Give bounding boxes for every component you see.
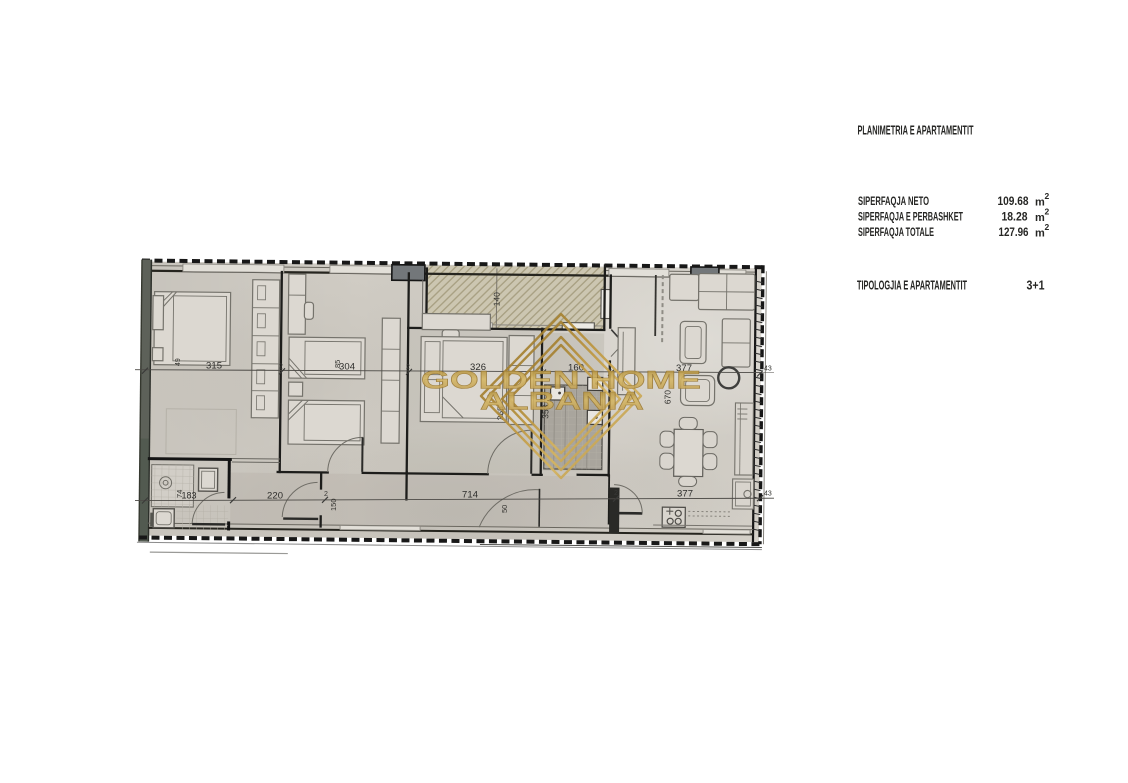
svg-text:43: 43 xyxy=(764,491,772,498)
svg-text:43: 43 xyxy=(764,366,772,373)
svg-text:2: 2 xyxy=(614,490,618,497)
svg-text:74: 74 xyxy=(175,490,184,498)
svg-text:49: 49 xyxy=(175,358,182,366)
svg-text:3+1: 3+1 xyxy=(1027,279,1045,293)
svg-text:SIPERFAQJA NETO: SIPERFAQJA NETO xyxy=(858,194,929,208)
svg-text:109.68: 109.68 xyxy=(998,194,1029,208)
svg-text:TIPOLOGJIA E APARTAMENTIT: TIPOLOGJIA E APARTAMENTIT xyxy=(857,279,967,293)
svg-text:2: 2 xyxy=(279,363,283,370)
svg-text:140: 140 xyxy=(492,292,502,307)
svg-text:m: m xyxy=(1035,212,1045,224)
svg-text:2: 2 xyxy=(324,491,328,498)
svg-text:220: 220 xyxy=(267,490,283,501)
svg-text:2: 2 xyxy=(406,364,410,371)
svg-text:SIPERFAQJA TOTALE: SIPERFAQJA TOTALE xyxy=(858,225,934,239)
svg-text:2: 2 xyxy=(1045,207,1050,217)
svg-text:85: 85 xyxy=(333,360,342,368)
svg-text:2: 2 xyxy=(1045,191,1050,201)
svg-text:m: m xyxy=(1035,228,1045,240)
svg-text:150: 150 xyxy=(329,498,338,511)
svg-text:50: 50 xyxy=(500,505,509,513)
svg-text:2: 2 xyxy=(1045,222,1050,232)
svg-text:714: 714 xyxy=(462,490,478,501)
svg-text:315: 315 xyxy=(206,361,222,372)
svg-text:ALBANIA: ALBANIA xyxy=(480,388,644,416)
svg-text:m: m xyxy=(1035,197,1045,209)
svg-text:377: 377 xyxy=(677,489,693,500)
svg-text:PLANIMETRIA E APARTAMENTIT: PLANIMETRIA E APARTAMENTIT xyxy=(858,124,974,138)
svg-text:127.96: 127.96 xyxy=(999,225,1029,239)
svg-text:SIPERFAQJA E PERBASHKET: SIPERFAQJA E PERBASHKET xyxy=(858,210,963,224)
svg-text:18.28: 18.28 xyxy=(1002,210,1028,224)
